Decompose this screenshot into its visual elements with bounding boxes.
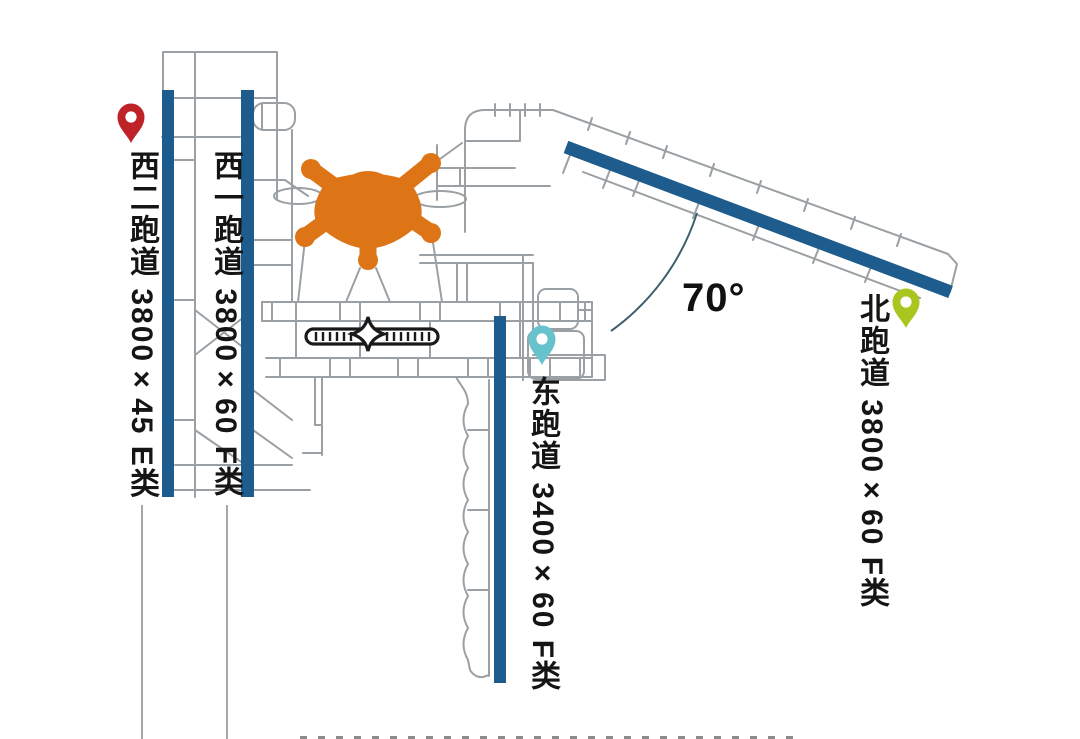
runway-label-north: 北跑道 3800×60 F类	[851, 293, 891, 628]
satellite-concourse	[306, 317, 438, 351]
runway-bar-north	[564, 141, 953, 298]
runway-label-west1: 西一跑道 3800×60 F类	[205, 150, 245, 510]
west2-pin-icon	[118, 104, 145, 144]
runway-label-east: 东跑道 3400×60 F类	[522, 376, 562, 706]
runway-label-west2: 西二跑道 3800×45 E类	[121, 150, 161, 510]
airport-diagram: 西二跑道 3800×45 E类 西一跑道 3800×60 F类 东跑道 3400…	[0, 0, 1080, 739]
terminal-building	[295, 153, 441, 270]
east-pin-icon	[529, 326, 556, 366]
runway-bar-east	[494, 316, 506, 683]
runway-centerline-extensions	[142, 505, 227, 739]
satellite-center-star	[352, 317, 384, 351]
angle-label: 70°	[682, 276, 746, 321]
runway-bar-west2	[162, 90, 174, 497]
north-pin-icon	[893, 289, 920, 329]
